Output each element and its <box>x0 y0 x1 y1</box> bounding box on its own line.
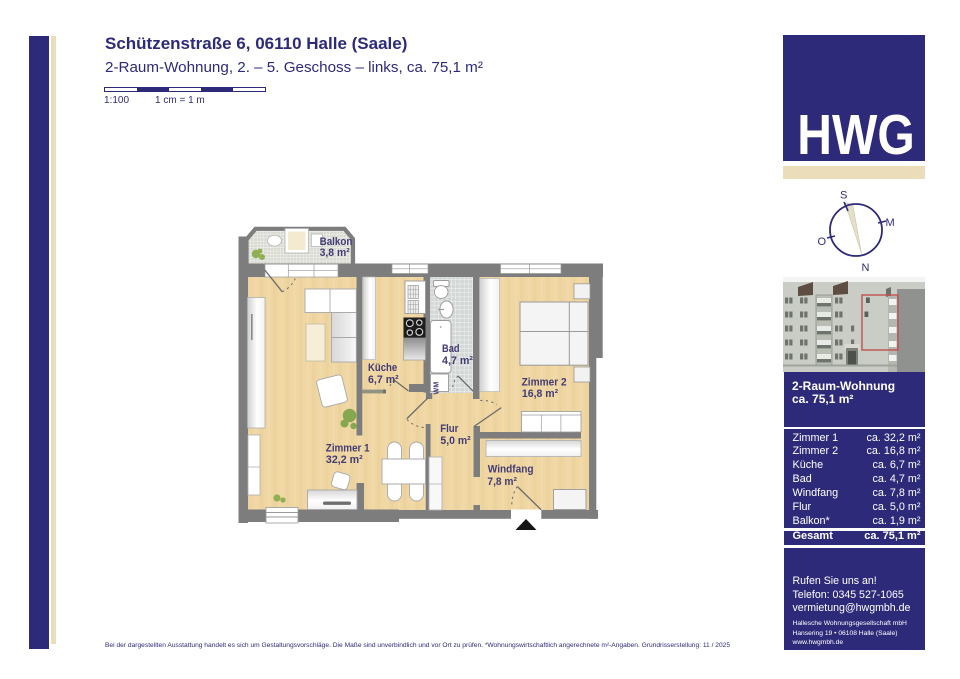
svg-text:7,8 m²: 7,8 m² <box>487 476 517 488</box>
svg-text:Windfang: Windfang <box>488 464 534 476</box>
svg-text:O: O <box>818 236 827 248</box>
svg-text:Flur: Flur <box>440 423 459 435</box>
svg-text:S: S <box>840 190 847 202</box>
svg-text:WM: WM <box>433 381 440 394</box>
svg-text:16,8 m²: 16,8 m² <box>522 388 559 400</box>
svg-text:Bad: Bad <box>442 343 460 355</box>
svg-text:32,2 m²: 32,2 m² <box>326 454 363 466</box>
svg-text:Balkon: Balkon <box>320 236 353 248</box>
svg-text:6,7 m²: 6,7 m² <box>368 374 399 386</box>
svg-text:N: N <box>862 262 870 274</box>
svg-text:4,7 m²: 4,7 m² <box>442 355 473 367</box>
svg-text:Küche: Küche <box>368 362 397 374</box>
svg-text:3,8 m²: 3,8 m² <box>320 247 350 259</box>
svg-text:M: M <box>886 217 895 229</box>
svg-text:Zimmer 1: Zimmer 1 <box>326 442 370 454</box>
svg-text:Zimmer 2: Zimmer 2 <box>522 376 567 388</box>
svg-text:5,0 m²: 5,0 m² <box>440 435 471 447</box>
